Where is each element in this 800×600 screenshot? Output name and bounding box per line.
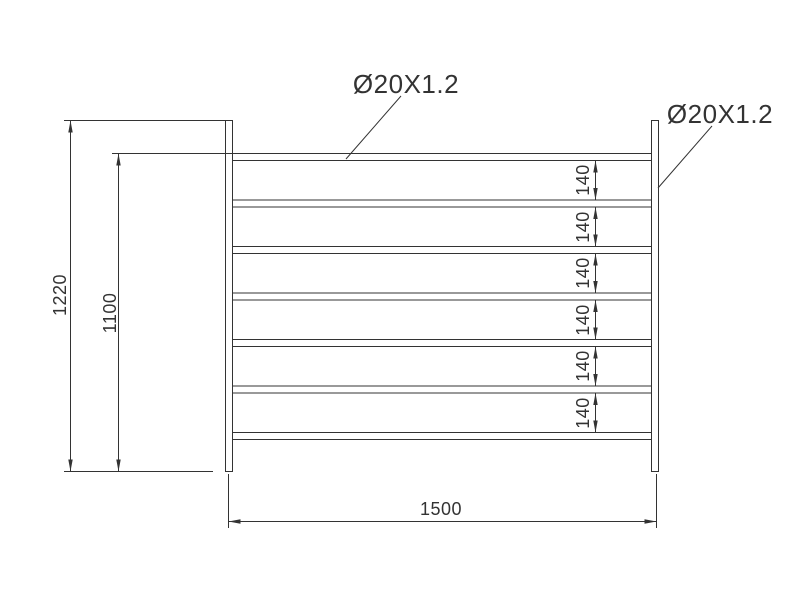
- arrow-up: [593, 300, 597, 312]
- arrow-left: [229, 519, 241, 523]
- rail-7: [233, 433, 652, 440]
- rail-2: [233, 200, 652, 207]
- rail-1: [233, 154, 652, 161]
- arrow-down: [68, 460, 72, 472]
- arrow-up: [68, 121, 72, 133]
- dimension-rail-gap-6: [593, 393, 597, 433]
- label-dim-rail-gap-1: 140: [574, 164, 592, 196]
- arrow-down: [116, 460, 120, 472]
- arrow-right: [645, 519, 657, 523]
- label-dim-rail-gap-6: 140: [574, 397, 592, 429]
- label-dim-rail-gap-2: 140: [574, 211, 592, 243]
- dimension-rail-gap-3: [593, 254, 597, 294]
- arrow-down: [593, 188, 597, 200]
- arrow-up: [593, 161, 597, 173]
- arrow-down: [593, 281, 597, 293]
- arrow-up: [116, 154, 120, 166]
- label-dim-rail-gap-5: 140: [574, 350, 592, 382]
- dimension-overall-height: [64, 121, 226, 472]
- arrow-up: [593, 393, 597, 405]
- right-post: [652, 121, 659, 472]
- arrow-down: [593, 328, 597, 340]
- rail-3: [233, 247, 652, 254]
- arrow-up: [593, 254, 597, 266]
- arrow-up: [593, 347, 597, 359]
- arrow-down: [593, 421, 597, 433]
- label-dim-overall-width: 1500: [420, 500, 462, 518]
- panel-frame: [226, 121, 659, 472]
- label-dim-overall-height: 1220: [51, 274, 69, 316]
- dimension-rail-gap-4: [593, 300, 597, 340]
- label-dim-rail-gap-3: 140: [574, 257, 592, 289]
- label-dim-rail-zone-height: 1100: [101, 293, 119, 334]
- leader-right-post-spec: [658, 126, 712, 188]
- rail-6: [233, 386, 652, 393]
- rail-5: [233, 340, 652, 347]
- dimension-rail-gap-2: [593, 207, 597, 247]
- label-post-spec-right: Ø20X1.2: [667, 101, 773, 127]
- technical-drawing-canvas: Ø20X1.2 Ø20X1.2 1220 1100 1500 140 140 1…: [0, 0, 800, 600]
- arrow-down: [593, 374, 597, 386]
- rail-4: [233, 293, 652, 300]
- dimension-rail-gap-1: [593, 161, 597, 201]
- label-dim-rail-gap-4: 140: [574, 304, 592, 336]
- dimension-rail-gap-5: [593, 347, 597, 387]
- arrow-down: [593, 235, 597, 247]
- leader-top-rail-spec: [346, 96, 401, 159]
- left-post: [226, 121, 233, 472]
- arrow-up: [593, 207, 597, 219]
- dimension-rail-zone-height: [112, 154, 234, 472]
- label-rail-spec-top: Ø20X1.2: [353, 71, 459, 97]
